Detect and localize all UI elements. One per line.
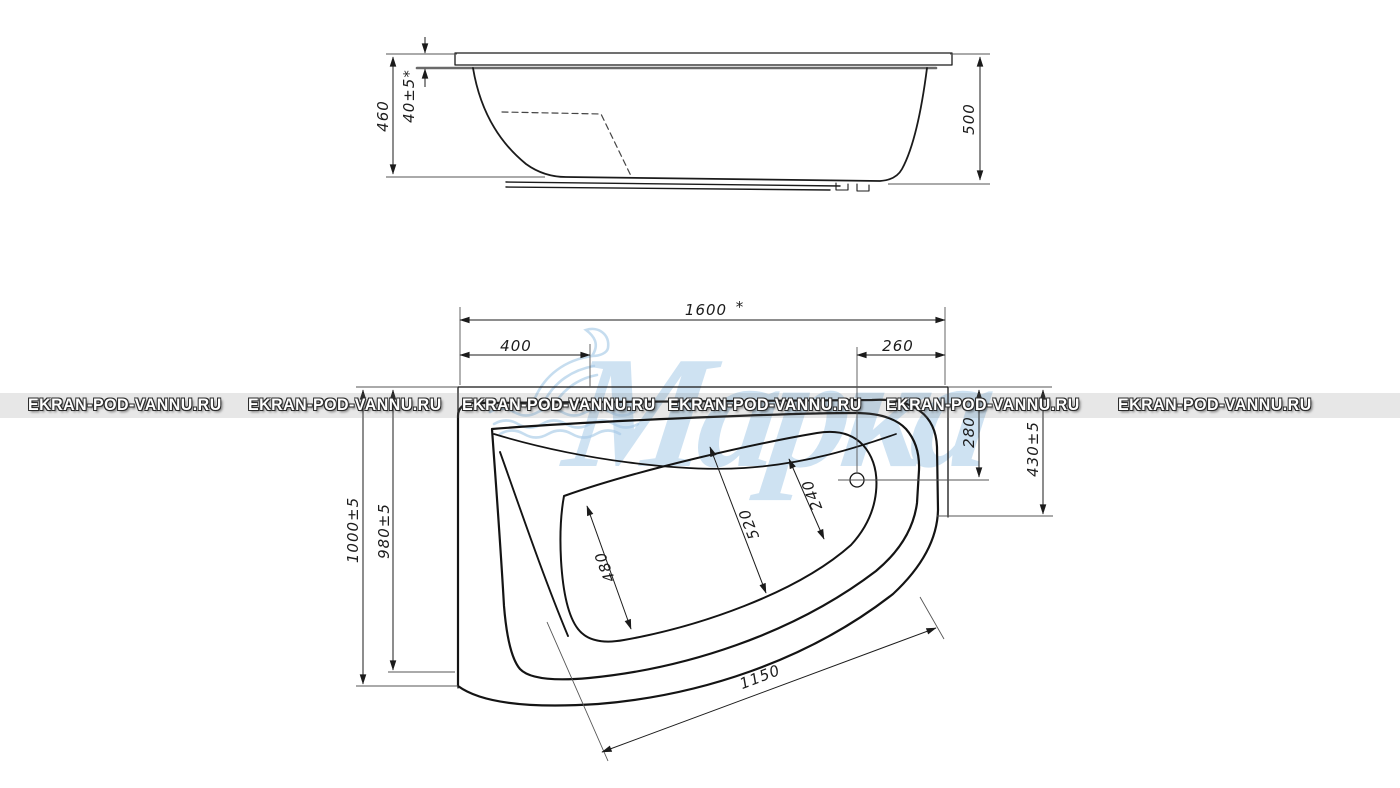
dim-label-500: 500 [960, 103, 978, 135]
plan-outer-rim-outline [458, 400, 938, 706]
watermark-site-text: EKRAN-POD-VANNU.RU [668, 395, 862, 415]
dim-label-1600: 1600 [685, 301, 727, 319]
dim-label-1000-5: 1000±5 [344, 497, 362, 563]
dim-label-460: 460 [374, 100, 392, 132]
dim-label-40-5: 40±5* [400, 69, 418, 123]
swan-neck-icon [586, 329, 608, 356]
side-bottom-support [506, 182, 840, 190]
watermark-site-text: EKRAN-POD-VANNU.RU [28, 395, 222, 415]
watermark-site-text: EKRAN-POD-VANNU.RU [886, 395, 1080, 415]
dim-line-1150 [602, 628, 936, 752]
wave-line [500, 431, 620, 438]
watermark-band: EKRAN-POD-VANNU.RU EKRAN-POD-VANNU.RU EK… [0, 393, 1400, 418]
plan-seat-curve [500, 452, 568, 636]
side-feet [836, 183, 869, 191]
technical-drawing-sheet: Марка [0, 0, 1400, 788]
side-view-drawing [417, 53, 952, 191]
dim-label-280: 280 [960, 416, 978, 448]
watermark-site-text: EKRAN-POD-VANNU.RU [462, 395, 656, 415]
dim-label-400: 400 [500, 337, 532, 355]
dim-label-980-5: 980±5 [375, 503, 393, 559]
plan-view-extension-lines [356, 307, 1053, 761]
side-hidden-seat-edge [502, 112, 631, 176]
watermark-site-text: EKRAN-POD-VANNU.RU [1118, 395, 1312, 415]
watermark-site-text: EKRAN-POD-VANNU.RU [248, 395, 442, 415]
side-rim-bar [455, 53, 952, 65]
plan-bowl-floor-outline [560, 432, 876, 642]
side-tub-shell [473, 68, 927, 181]
plan-view-drawing [458, 387, 948, 706]
dim-label-1600-note: * [736, 298, 745, 316]
plan-frame [458, 387, 948, 688]
plan-shelf-curve [494, 434, 896, 469]
dim-label-260: 260 [882, 337, 914, 355]
dim-label-430-5: 430±5 [1024, 421, 1042, 477]
side-view-extension-lines [386, 54, 990, 184]
plan-bowl-opening-outline [492, 413, 919, 679]
